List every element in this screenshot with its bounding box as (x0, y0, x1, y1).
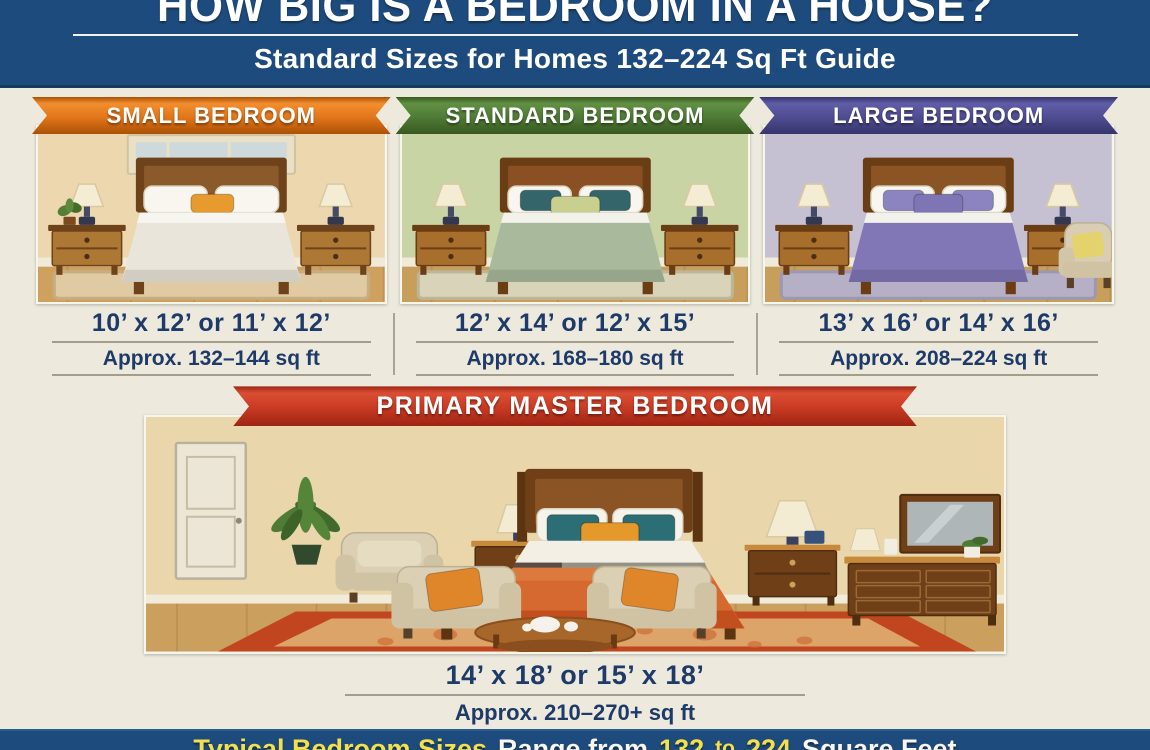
footer-segment-3: to (715, 737, 735, 750)
panel-small-bedroom: SMALL BEDROOM 10’ x 12’ or 11’ x 12’ App… (36, 97, 387, 376)
standard-bedroom-illustration-frame (400, 125, 751, 304)
small-bedroom-ribbon: SMALL BEDROOM (32, 97, 391, 134)
divider (52, 374, 371, 376)
large-bedroom-area: Approx. 208–224 sq ft (769, 343, 1108, 374)
footer-segment-4: 224 (746, 734, 791, 750)
small-bedroom-dimensions: 10’ x 12’ or 11’ x 12’ (42, 309, 381, 341)
small-bedroom-area: Approx. 132–144 sq ft (42, 343, 381, 374)
large-bedroom-illustration (765, 127, 1112, 302)
standard-bedroom-illustration (402, 127, 749, 302)
bedroom-panels-row: SMALL BEDROOM 10’ x 12’ or 11’ x 12’ App… (0, 88, 1150, 376)
small-bedroom-illustration-frame (36, 125, 387, 304)
primary-master-bedroom-ribbon: PRIMARY MASTER BEDROOM (233, 386, 917, 426)
divider (416, 374, 735, 376)
footer-segment-5: Square Feet (802, 734, 957, 750)
footer-segment-2: 132 (659, 734, 704, 750)
standard-bedroom-ribbon: STANDARD BEDROOM (396, 97, 755, 134)
large-bedroom-illustration-frame (763, 125, 1114, 304)
footer-summary-bar: Typical Bedroom SizesRange from132to224S… (0, 729, 1150, 750)
page-subtitle: Standard Sizes for Homes 132–224 Sq Ft G… (0, 43, 1150, 75)
large-bedroom-ribbon: LARGE BEDROOM (759, 97, 1118, 134)
primary-master-area: Approx. 210–270+ sq ft (335, 696, 815, 729)
header-banner: HOW BIG IS A BEDROOM IN A HOUSE? Standar… (0, 0, 1150, 88)
standard-bedroom-dimensions: 12’ x 14’ or 12’ x 15’ (406, 309, 745, 341)
large-bedroom-dims-block: 13’ x 16’ or 14’ x 16’ Approx. 208–224 s… (763, 309, 1114, 376)
small-bedroom-illustration (38, 127, 385, 302)
page-title: HOW BIG IS A BEDROOM IN A HOUSE? (17, 0, 1133, 29)
footer-segment-1: Range from (498, 734, 648, 750)
primary-master-illustration (146, 417, 1004, 651)
panel-standard-bedroom: STANDARD BEDROOM 12’ x 14’ or 12’ x 15’ … (400, 97, 751, 376)
panel-large-bedroom: LARGE BEDROOM 13’ x 16’ or 14’ x 16’ App… (763, 97, 1114, 376)
primary-master-dims-block: 14’ x 18’ or 15’ x 18’ Approx. 210–270+ … (335, 660, 815, 729)
primary-master-dimensions: 14’ x 18’ or 15’ x 18’ (335, 660, 815, 694)
title-divider (73, 34, 1078, 36)
divider (779, 374, 1098, 376)
large-bedroom-dimensions: 13’ x 16’ or 14’ x 16’ (769, 309, 1108, 341)
primary-master-illustration-frame (144, 415, 1006, 653)
small-bedroom-dims-block: 10’ x 12’ or 11’ x 12’ Approx. 132–144 s… (36, 309, 387, 376)
standard-bedroom-dims-block: 12’ x 14’ or 12’ x 15’ Approx. 168–180 s… (400, 309, 751, 376)
panel-primary-master-bedroom: PRIMARY MASTER BEDROOM (144, 386, 1006, 653)
standard-bedroom-area: Approx. 168–180 sq ft (406, 343, 745, 374)
footer-segment-0: Typical Bedroom Sizes (193, 734, 487, 750)
